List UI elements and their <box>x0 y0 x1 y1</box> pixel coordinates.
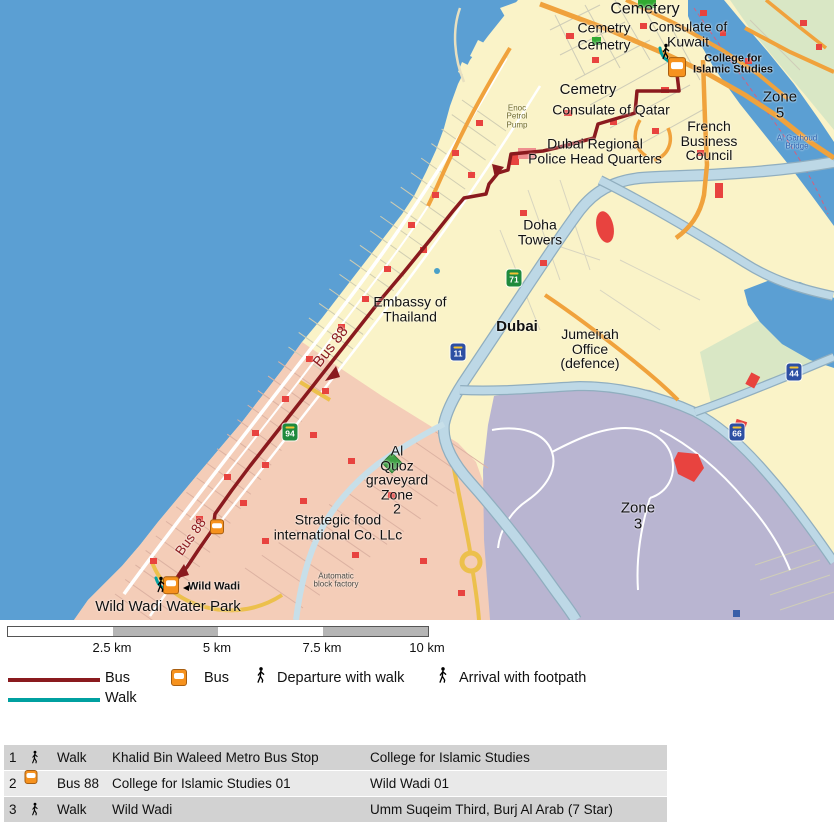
shield-number: 44 <box>787 369 802 379</box>
scale-bar-labels: 2.5 km5 km7.5 km10 km <box>7 637 428 655</box>
bus-icon <box>25 770 38 784</box>
step-mode: Walk <box>57 750 112 765</box>
road-shield-11: 11 <box>451 344 466 361</box>
map-overlay: CemeteryCemetryCemetryConsulate of Kuwai… <box>0 0 834 620</box>
shield-number: 66 <box>730 429 745 439</box>
map-legend: Bus Walk Bus Departure with walk Arrival… <box>0 664 834 722</box>
scale-segment <box>218 627 323 636</box>
bus-window <box>166 580 177 586</box>
map-label: Enoc Petrol Pump <box>507 105 528 130</box>
step-to: Umm Suqeim Third, Burj Al Arab (7 Star) <box>370 802 667 817</box>
map-label: Cemetry <box>578 21 631 36</box>
map-label: Al Quoz graveyard Zone 2 <box>366 444 428 517</box>
walker-glyph <box>661 43 671 61</box>
scale-tick-label: 5 km <box>203 640 231 655</box>
map-label: College for Islamic Studies <box>693 54 773 77</box>
itinerary-row[interactable]: 2Bus 88College for Islamic Studies 01Wil… <box>4 771 667 797</box>
walk-line-sample <box>8 698 100 702</box>
step-to: College for Islamic Studies <box>370 750 667 765</box>
scale-segment <box>113 627 218 636</box>
walker-glyph <box>156 576 166 594</box>
bus-icon <box>31 777 57 791</box>
map-label: Wild Wadi Water Park <box>95 599 241 615</box>
itinerary-table: 1WalkKhalid Bin Waleed Metro Bus StopCol… <box>4 745 667 823</box>
map-label: French Business Council <box>681 119 738 163</box>
map-label: Dubai <box>496 319 538 335</box>
scale-bar-track <box>7 626 429 637</box>
map-label: Strategic food international Co. LLc <box>274 512 402 541</box>
route-map-page: CemeteryCemetryCemetryConsulate of Kuwai… <box>0 0 834 823</box>
step-number: 1 <box>4 750 31 765</box>
map-label: Zone 3 <box>621 500 655 531</box>
scale-segment <box>323 627 428 636</box>
map-label: Zone 5 <box>763 89 797 120</box>
walk-icon <box>31 802 57 817</box>
legend-bus-icon-label: Bus <box>204 670 229 686</box>
shield-number: 11 <box>451 349 466 359</box>
walker-glyph <box>256 666 266 685</box>
road-shield-71: 71 <box>507 270 522 287</box>
walker-glyph <box>438 666 448 685</box>
map-label: Bus 88 <box>310 324 351 370</box>
bus-window <box>27 773 35 778</box>
scale-tick-label: 10 km <box>409 640 444 655</box>
legend-arrival-label: Arrival with footpath <box>459 670 586 686</box>
map-label: Jumeirah Office (defence) <box>560 327 619 371</box>
scale-tick-label: 7.5 km <box>302 640 341 655</box>
map-label: Cemetry <box>578 38 631 53</box>
legend-departure-label: Departure with walk <box>277 670 404 686</box>
map-label: Embassy of Thailand <box>373 294 446 323</box>
map-canvas[interactable]: CemeteryCemetryCemetryConsulate of Kuwai… <box>0 0 834 620</box>
step-from: Khalid Bin Waleed Metro Bus Stop <box>112 750 370 765</box>
step-number: 3 <box>4 802 31 817</box>
map-label: Cemetry <box>560 82 617 98</box>
itinerary-row[interactable]: 3WalkWild WadiUmm Suqeim Third, Burj Al … <box>4 797 667 823</box>
map-label: Doha Towers <box>518 217 562 246</box>
map-label: Cemetery <box>610 2 679 19</box>
bus-window <box>671 62 683 69</box>
step-mode: Bus 88 <box>57 776 112 791</box>
shield-number: 94 <box>283 429 298 439</box>
map-label: Wild Wadi <box>188 581 240 592</box>
bus-icon <box>171 669 187 686</box>
arrival-walker-icon <box>438 666 448 689</box>
legend-walk-line-label: Walk <box>105 690 137 706</box>
step-mode: Walk <box>57 802 112 817</box>
walker-glyph <box>31 750 39 765</box>
scale-segment <box>8 627 113 636</box>
bus-route-line-sample <box>8 678 100 682</box>
step-to: Wild Wadi 01 <box>370 776 667 791</box>
walk-icon <box>31 750 57 765</box>
legend-bus-line-label: Bus <box>105 670 130 686</box>
bus-window <box>212 523 221 528</box>
map-label: Automatic block factory <box>314 573 359 590</box>
shield-number: 71 <box>507 275 522 285</box>
scale-bar: 2.5 km5 km7.5 km10 km <box>7 626 428 655</box>
map-label: Consulate of Qatar <box>552 103 670 118</box>
departure-walker-icon <box>256 666 266 689</box>
map-label: Al Garhoud Bridge <box>777 135 817 152</box>
bus-stop-icon <box>210 519 224 534</box>
map-label: Bus 88 <box>173 516 209 558</box>
map-label: Dubai Regional Police Head Quarters <box>528 136 662 165</box>
road-shield-94: 94 <box>283 424 298 441</box>
road-shield-66: 66 <box>730 424 745 441</box>
walker-glyph <box>31 802 39 817</box>
road-shield-44: 44 <box>787 364 802 381</box>
poi-marker <box>183 585 189 591</box>
itinerary-row[interactable]: 1WalkKhalid Bin Waleed Metro Bus StopCol… <box>4 745 667 771</box>
bus-window <box>174 673 185 679</box>
step-from: Wild Wadi <box>112 802 370 817</box>
step-from: College for Islamic Studies 01 <box>112 776 370 791</box>
scale-tick-label: 2.5 km <box>92 640 131 655</box>
